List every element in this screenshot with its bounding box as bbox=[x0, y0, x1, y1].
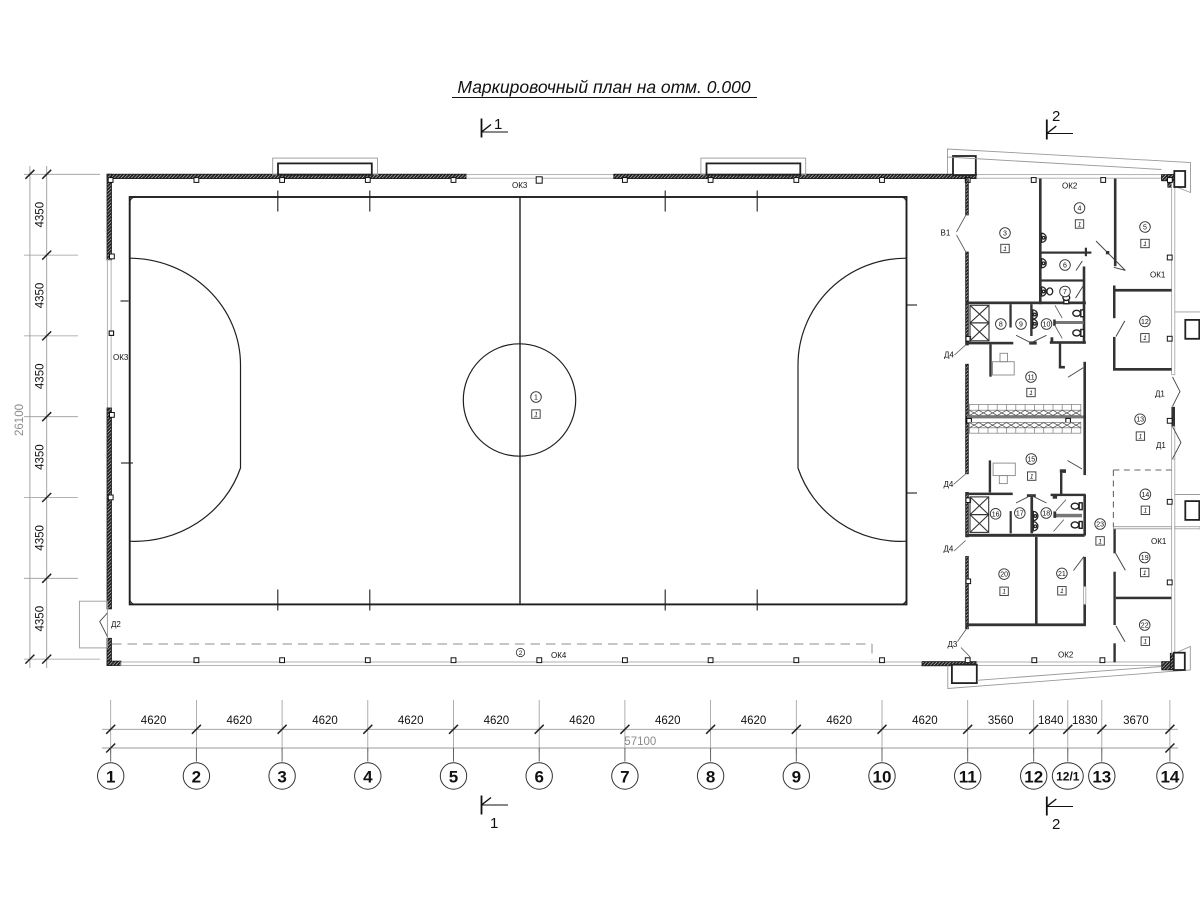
svg-text:1: 1 bbox=[1003, 246, 1007, 253]
svg-text:57100: 57100 bbox=[624, 736, 656, 748]
svg-text:18: 18 bbox=[1042, 511, 1050, 518]
svg-text:1: 1 bbox=[1030, 474, 1034, 481]
svg-text:5: 5 bbox=[449, 767, 458, 786]
svg-text:6: 6 bbox=[534, 767, 543, 786]
svg-text:Маркировочный план на отм. 0.0: Маркировочный план на отм. 0.000 bbox=[457, 77, 750, 97]
svg-text:1840: 1840 bbox=[1038, 715, 1064, 727]
svg-text:4350: 4350 bbox=[35, 606, 47, 632]
svg-text:17: 17 bbox=[1016, 511, 1024, 518]
svg-text:1: 1 bbox=[1060, 588, 1064, 595]
svg-text:Д4: Д4 bbox=[944, 351, 954, 360]
svg-text:Д2: Д2 bbox=[111, 620, 121, 629]
svg-text:3: 3 bbox=[1003, 231, 1007, 238]
svg-text:1: 1 bbox=[1143, 570, 1147, 577]
svg-text:4620: 4620 bbox=[312, 715, 338, 727]
svg-text:4620: 4620 bbox=[741, 715, 767, 727]
svg-text:Д1: Д1 bbox=[1156, 441, 1166, 450]
svg-text:12/1: 12/1 bbox=[1056, 770, 1080, 784]
svg-text:4: 4 bbox=[1078, 206, 1082, 213]
svg-text:2: 2 bbox=[192, 767, 201, 786]
svg-text:ОК1: ОК1 bbox=[1151, 537, 1167, 546]
svg-text:11: 11 bbox=[1027, 375, 1034, 382]
svg-text:2: 2 bbox=[519, 650, 523, 657]
svg-text:9: 9 bbox=[1019, 322, 1023, 329]
svg-text:1: 1 bbox=[490, 815, 498, 832]
svg-text:4350: 4350 bbox=[35, 202, 47, 228]
svg-text:22: 22 bbox=[1141, 623, 1149, 630]
svg-text:ОК3: ОК3 bbox=[512, 181, 528, 190]
svg-text:4350: 4350 bbox=[35, 525, 47, 551]
svg-text:1: 1 bbox=[1143, 639, 1147, 646]
svg-text:3560: 3560 bbox=[988, 715, 1014, 727]
svg-text:2: 2 bbox=[1052, 816, 1060, 833]
svg-text:1: 1 bbox=[1144, 508, 1148, 515]
svg-text:Д4: Д4 bbox=[944, 480, 954, 489]
svg-text:1830: 1830 bbox=[1072, 715, 1098, 727]
svg-text:4350: 4350 bbox=[35, 444, 47, 470]
svg-text:1: 1 bbox=[494, 116, 502, 133]
svg-text:4620: 4620 bbox=[227, 715, 253, 727]
svg-text:20: 20 bbox=[1000, 572, 1008, 579]
svg-text:4620: 4620 bbox=[569, 715, 595, 727]
svg-text:9: 9 bbox=[792, 767, 801, 786]
svg-text:2: 2 bbox=[1052, 108, 1060, 125]
svg-text:Д1: Д1 bbox=[1155, 390, 1165, 399]
svg-text:5: 5 bbox=[1143, 225, 1147, 232]
svg-text:1: 1 bbox=[534, 395, 538, 402]
svg-text:21: 21 bbox=[1058, 571, 1066, 578]
svg-text:23: 23 bbox=[1096, 522, 1104, 529]
svg-text:ОК3: ОК3 bbox=[113, 353, 129, 362]
svg-text:1: 1 bbox=[106, 767, 115, 786]
svg-text:3670: 3670 bbox=[1123, 715, 1149, 727]
svg-text:1: 1 bbox=[534, 412, 538, 419]
svg-text:ОК2: ОК2 bbox=[1058, 651, 1074, 660]
svg-text:4350: 4350 bbox=[35, 364, 47, 390]
svg-text:1: 1 bbox=[1143, 241, 1147, 248]
svg-text:14: 14 bbox=[1142, 492, 1150, 499]
svg-text:15: 15 bbox=[1027, 457, 1035, 464]
svg-text:ОК2: ОК2 bbox=[1062, 182, 1078, 191]
svg-text:4620: 4620 bbox=[655, 715, 681, 727]
svg-text:19: 19 bbox=[1141, 555, 1149, 562]
svg-text:4350: 4350 bbox=[35, 283, 47, 309]
svg-text:14: 14 bbox=[1160, 767, 1179, 786]
svg-text:ОК4: ОК4 bbox=[551, 651, 567, 660]
svg-text:8: 8 bbox=[706, 767, 715, 786]
svg-text:1: 1 bbox=[1002, 589, 1006, 596]
svg-text:ОК1: ОК1 bbox=[1150, 271, 1166, 280]
svg-text:6: 6 bbox=[1063, 263, 1067, 270]
svg-text:1: 1 bbox=[1139, 434, 1143, 441]
svg-text:4: 4 bbox=[363, 767, 373, 786]
svg-text:7: 7 bbox=[620, 767, 629, 786]
svg-text:4620: 4620 bbox=[912, 715, 938, 727]
svg-text:4620: 4620 bbox=[826, 715, 852, 727]
svg-text:12: 12 bbox=[1141, 319, 1149, 326]
svg-text:10: 10 bbox=[1043, 322, 1051, 329]
svg-text:Д3: Д3 bbox=[948, 640, 958, 649]
svg-text:В1: В1 bbox=[941, 229, 951, 238]
svg-text:8: 8 bbox=[999, 322, 1003, 329]
svg-text:7: 7 bbox=[1063, 289, 1067, 296]
svg-text:1: 1 bbox=[1078, 221, 1082, 228]
svg-text:1: 1 bbox=[1029, 390, 1033, 397]
svg-text:Д4: Д4 bbox=[944, 545, 954, 554]
svg-text:13: 13 bbox=[1092, 767, 1111, 786]
svg-text:16: 16 bbox=[992, 511, 1000, 518]
svg-text:12: 12 bbox=[1024, 767, 1043, 786]
svg-text:3: 3 bbox=[277, 767, 286, 786]
svg-text:26100: 26100 bbox=[14, 404, 26, 436]
svg-text:13: 13 bbox=[1136, 417, 1144, 424]
svg-text:11: 11 bbox=[959, 767, 977, 786]
svg-text:1: 1 bbox=[1143, 335, 1147, 342]
svg-text:10: 10 bbox=[873, 767, 892, 786]
svg-text:1: 1 bbox=[1098, 538, 1102, 545]
svg-text:4620: 4620 bbox=[484, 715, 510, 727]
svg-text:4620: 4620 bbox=[398, 715, 424, 727]
svg-text:4620: 4620 bbox=[141, 715, 167, 727]
